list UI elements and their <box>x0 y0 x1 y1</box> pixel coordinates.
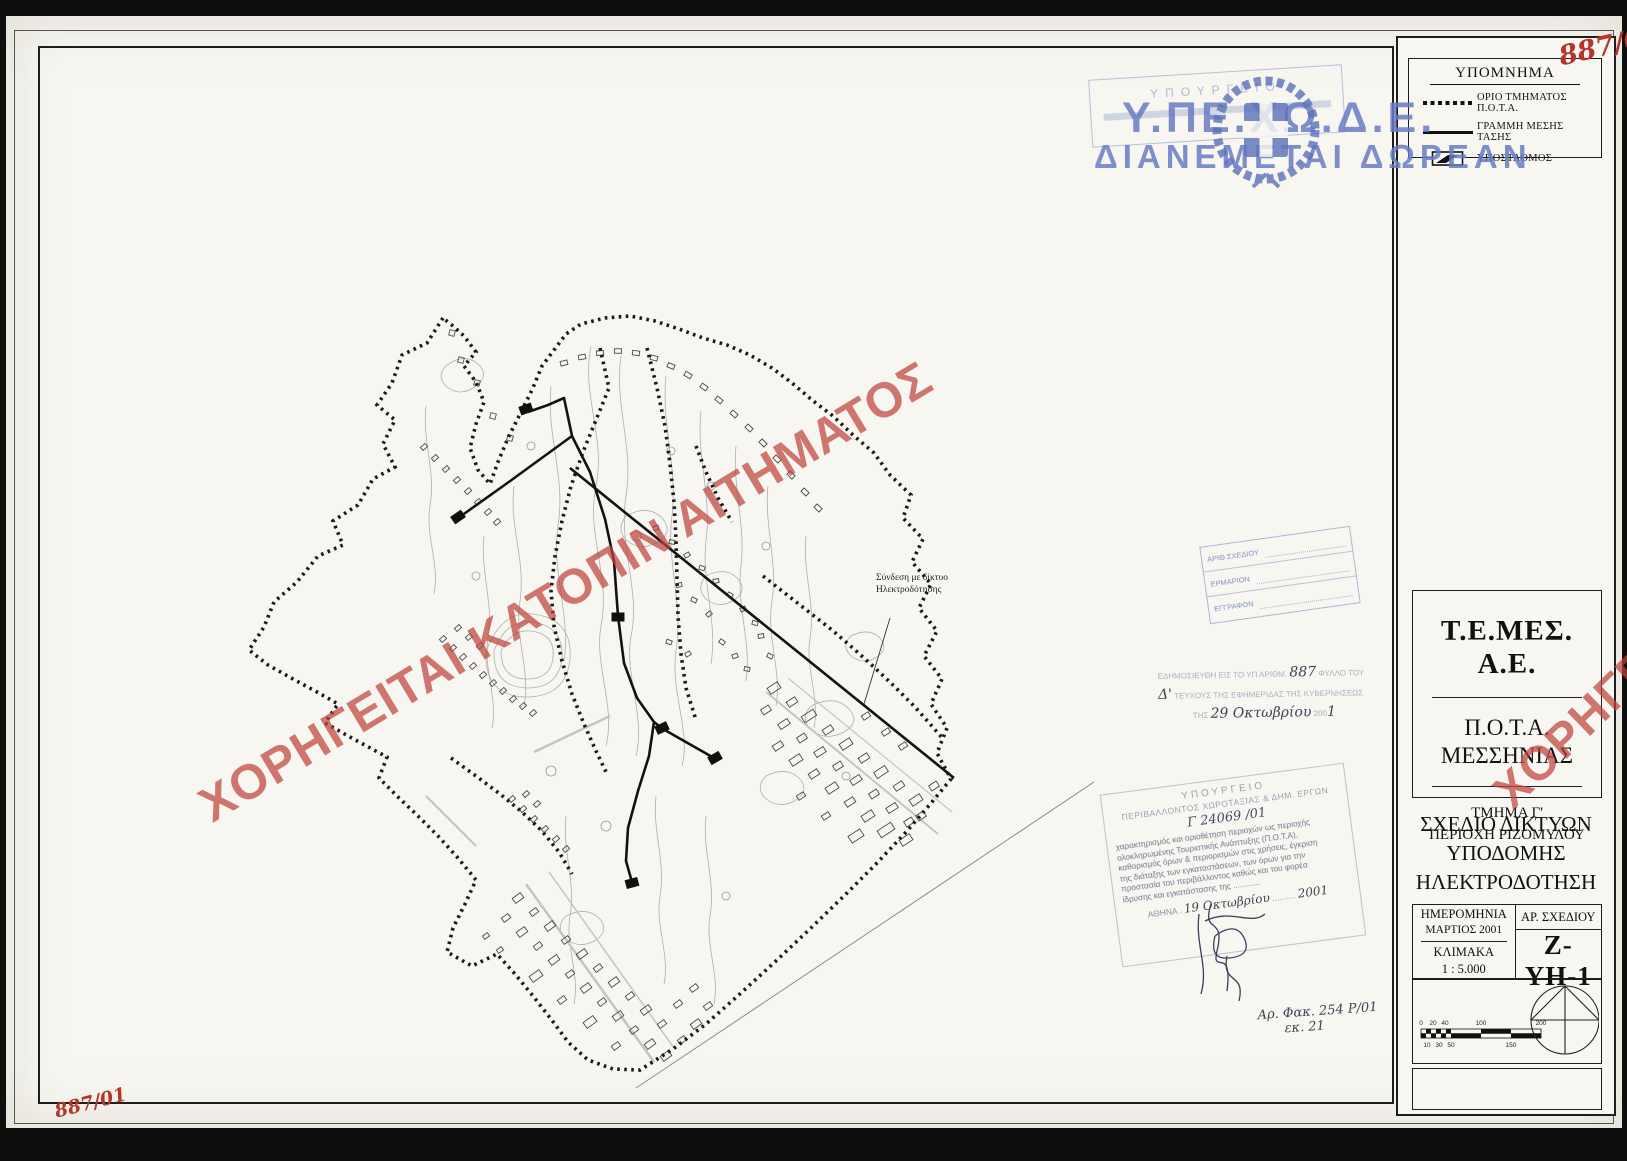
drawing-sheet: Σύνδεση με δίκτυο Ηλεκτροδότησης ΥΠΟΜΝΗΜ… <box>6 16 1622 1128</box>
greek-coat-of-arms <box>1206 70 1326 194</box>
svg-text:100: 100 <box>1476 1020 1487 1027</box>
annotation-line1: Σύνδεση με δίκτυο <box>876 572 948 584</box>
empty-revision-box <box>1412 1068 1602 1110</box>
signature-scribble <box>1191 896 1281 1006</box>
handwritten-ref-top-right: 887/01 <box>1556 19 1627 73</box>
svg-text:0: 0 <box>1419 1020 1423 1027</box>
map-annotation: Σύνδεση με δίκτυο Ηλεκτροδότησης <box>876 572 948 596</box>
scale-value: 1 : 5.000 <box>1413 962 1515 977</box>
hw-gazette-date: 29 Οκτωβρίου <box>1210 704 1311 722</box>
svg-text:10: 10 <box>1423 1042 1431 1049</box>
date-value: ΜΑΡΤΙΟΣ 2001 <box>1421 924 1507 942</box>
meta-box: ΗΜΕΡΟΜΗΝΙΑ ΜΑΡΤΙΟΣ 2001 ΚΛΙΜΑΚΑ 1 : 5.00… <box>1412 904 1602 980</box>
hw-gazette-issue: Δ' <box>1158 687 1172 703</box>
drawing-number-cell: ΑΡ. ΣΧΕΔΙΟΥ Ζ-ΥΗ-1 <box>1516 905 1601 979</box>
hw-gazette-number: 887 <box>1289 664 1316 680</box>
legend-title: ΥΠΟΜΝΗΜΑ <box>1430 65 1580 85</box>
scanned-drawing-page: Σύνδεση με δίκτυο Ηλεκτροδότησης ΥΠΟΜΝΗΜ… <box>0 0 1627 1161</box>
svg-text:40: 40 <box>1441 1020 1449 1027</box>
legend-item-boundary: ΟΡΙΟ ΤΜΗΜΑΤΟΣ Π.Ο.Τ.Α. <box>1419 92 1593 114</box>
date-scale-cell: ΗΜΕΡΟΜΗΝΙΑ ΜΑΡΤΙΟΣ 2001 ΚΛΙΜΑΚΑ 1 : 5.00… <box>1413 905 1516 979</box>
svg-text:150: 150 <box>1506 1042 1517 1049</box>
svg-text:20: 20 <box>1429 1020 1437 1027</box>
svg-text:30: 30 <box>1435 1042 1443 1049</box>
gazette-stamp: ΕΔΗΜΟΣΙΕΥΘΗ ΕΙΣ ΤΟ ΥΠ ΑΡΙΘΜ. 887 ΦΥΛΛΟ Τ… <box>1157 662 1370 726</box>
annotation-line2: Ηλεκτροδότησης <box>876 584 948 596</box>
hw-gazette-year: 1 <box>1327 704 1336 720</box>
title-block-column: ΥΠΟΜΝΗΜΑ ΟΡΙΟ ΤΜΗΜΑΤΟΣ Π.Ο.Τ.Α. ΓΡΑΜΜΗ Μ… <box>1396 36 1616 1116</box>
number-label: ΑΡ. ΣΧΕΔΙΟΥ <box>1516 905 1601 930</box>
divider <box>1432 697 1582 698</box>
compass-rose <box>1531 986 1599 1054</box>
svg-text:50: 50 <box>1447 1042 1455 1049</box>
company-name: Τ.Ε.ΜΕΣ. Α.Ε. <box>1413 615 1601 681</box>
svg-text:200: 200 <box>1536 1020 1547 1027</box>
scale-bar: 0 20 40 100 200 10 30 50 150 <box>1419 1020 1547 1049</box>
scale-compass-box: 0 20 40 100 200 10 30 50 150 <box>1412 978 1602 1064</box>
drawing-title: ΣΧΕΔΙΟ ΔΙΚΤΥΩΝ ΥΠΟΔΟΜΗΣ ΗΛΕΚΤΡΟΔΟΤΗΣΗ <box>1398 810 1614 897</box>
scale-label: ΚΛΙΜΑΚΑ <box>1413 945 1515 960</box>
hw-approval-year: 2001 <box>1297 883 1329 901</box>
date-label: ΗΜΕΡΟΜΗΝΙΑ <box>1413 907 1515 922</box>
scale-bar-and-compass: 0 20 40 100 200 10 30 50 150 <box>1413 979 1599 1061</box>
